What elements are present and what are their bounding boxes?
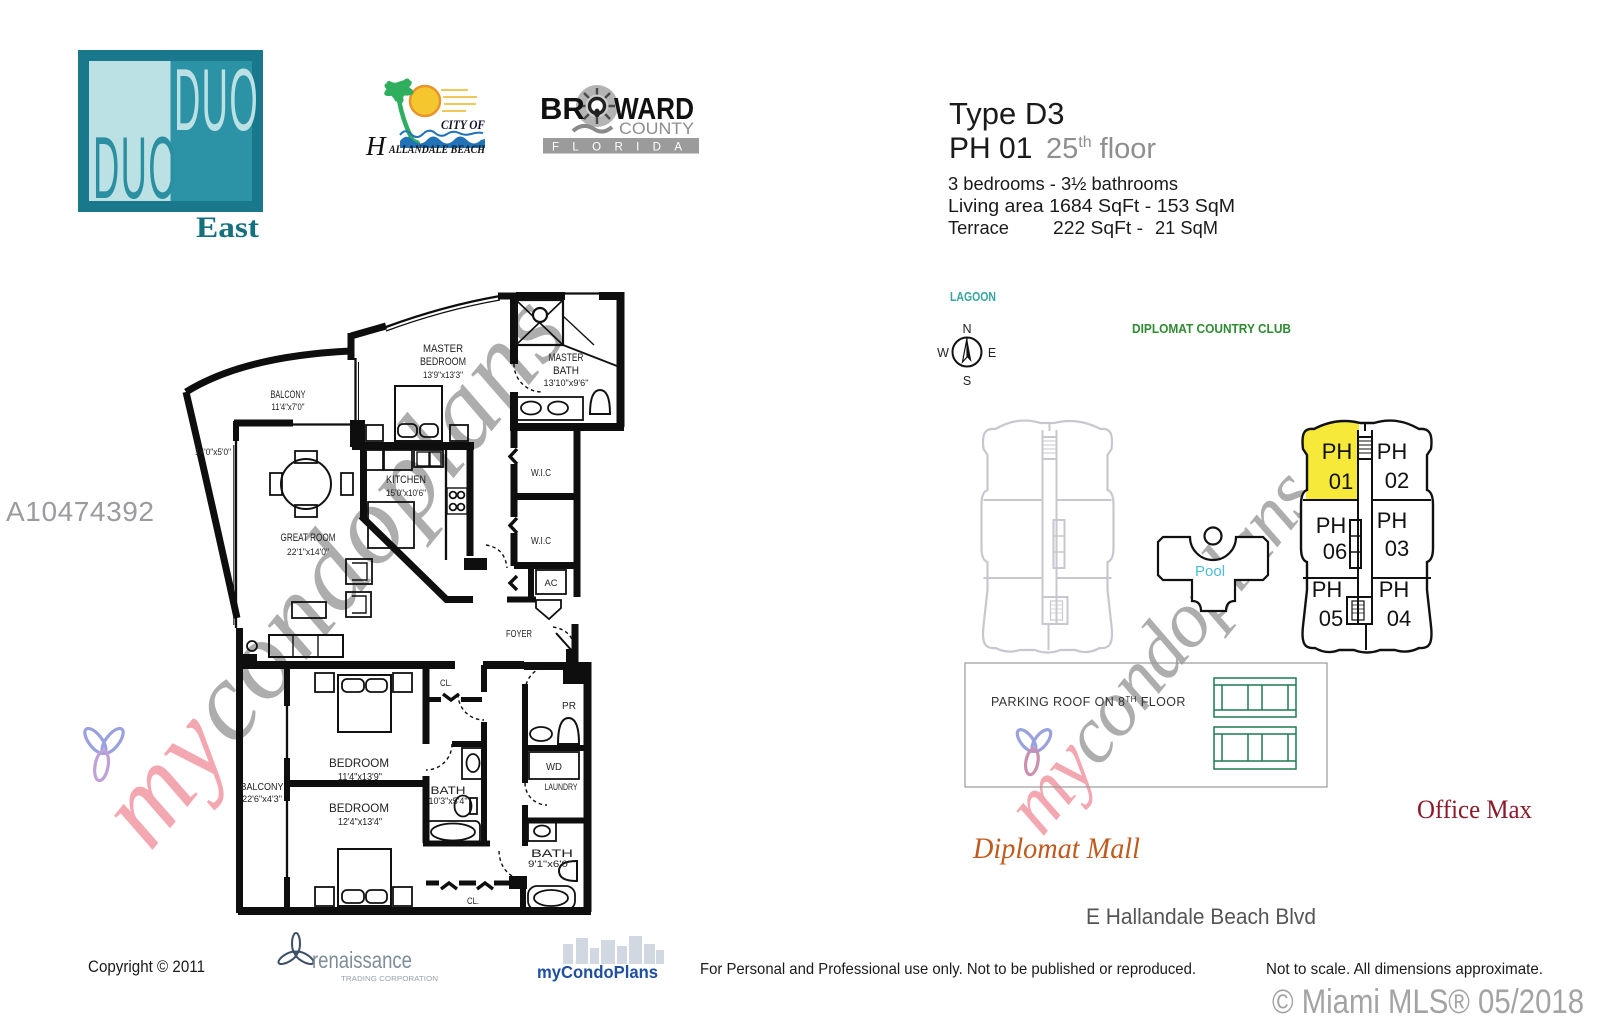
svg-text:01: 01 bbox=[1329, 469, 1353, 494]
svg-text:BR: BR bbox=[540, 91, 585, 126]
svg-text:Type D3: Type D3 bbox=[949, 96, 1064, 131]
svg-text:E: E bbox=[988, 346, 996, 360]
svg-text:03: 03 bbox=[1385, 536, 1409, 561]
svg-text:BEDROOM: BEDROOM bbox=[329, 801, 389, 815]
svg-text:MASTER: MASTER bbox=[423, 343, 463, 355]
svg-text:Terrace: Terrace bbox=[948, 217, 1009, 238]
svg-text:renaissance: renaissance bbox=[312, 947, 412, 973]
svg-text:A10474392: A10474392 bbox=[6, 496, 154, 527]
svg-text:© Miami MLS® 05/2018: © Miami MLS® 05/2018 bbox=[1272, 983, 1584, 1021]
svg-text:N: N bbox=[962, 322, 971, 336]
svg-text:BEDROOM: BEDROOM bbox=[329, 756, 389, 770]
svg-text:W: W bbox=[937, 346, 949, 360]
svg-text:13'9"x13'3": 13'9"x13'3" bbox=[423, 370, 463, 381]
svg-text:PH: PH bbox=[1377, 508, 1408, 533]
svg-text:9'1"x6'0": 9'1"x6'0" bbox=[528, 859, 572, 869]
svg-text:PR: PR bbox=[562, 701, 576, 712]
svg-text:22'1"x14'0": 22'1"x14'0" bbox=[287, 547, 329, 558]
svg-text:E Hallandale Beach Blvd: E Hallandale Beach Blvd bbox=[1086, 904, 1316, 929]
svg-text:02: 02 bbox=[1385, 468, 1409, 493]
svg-text:04: 04 bbox=[1387, 606, 1411, 631]
svg-text:BALCONY: BALCONY bbox=[241, 782, 284, 793]
svg-text:BATH: BATH bbox=[553, 365, 579, 377]
svg-text:Not to scale. All dimensions: Not to scale. All dimensions approximate… bbox=[1266, 961, 1543, 978]
svg-text:W.I.C: W.I.C bbox=[531, 536, 551, 547]
svg-text:Pool: Pool bbox=[1195, 563, 1225, 580]
svg-text:Copyright © 2011: Copyright © 2011 bbox=[88, 958, 205, 976]
svg-text:11'4"x13'9": 11'4"x13'9" bbox=[338, 772, 382, 783]
svg-text:PH 01: PH 01 bbox=[949, 132, 1032, 165]
svg-text:Living area 1684 SqFt - 153 Sq: Living area 1684 SqFt - 153 SqM bbox=[948, 195, 1235, 216]
svg-text:KITCHEN: KITCHEN bbox=[386, 474, 426, 486]
svg-text:Office Max: Office Max bbox=[1417, 795, 1532, 824]
svg-text:AC: AC bbox=[545, 578, 559, 588]
svg-text:13'10"x9'6": 13'10"x9'6" bbox=[544, 378, 589, 389]
svg-text:12'4"x13'4": 12'4"x13'4" bbox=[338, 817, 382, 828]
svg-text:LAGOON: LAGOON bbox=[950, 290, 996, 304]
svg-text:05: 05 bbox=[1319, 606, 1343, 631]
svg-text:Diplomat Mall: Diplomat Mall bbox=[972, 832, 1140, 865]
svg-text:LAUNDRY: LAUNDRY bbox=[545, 782, 578, 793]
svg-text:DUO: DUO bbox=[93, 120, 178, 218]
svg-text:TRADING CORPORATION: TRADING CORPORATION bbox=[341, 974, 438, 983]
svg-text:25th floor: 25th floor bbox=[1046, 133, 1156, 165]
svg-text:CL.: CL. bbox=[440, 678, 452, 689]
svg-text:PH: PH bbox=[1316, 513, 1347, 538]
svg-text:East: East bbox=[196, 211, 259, 244]
svg-text:11'4"x7'0": 11'4"x7'0" bbox=[272, 402, 305, 412]
svg-text:22'6"x4'3": 22'6"x4'3" bbox=[242, 794, 282, 804]
svg-text:CITY OF: CITY OF bbox=[441, 117, 485, 132]
svg-text:PH: PH bbox=[1322, 439, 1353, 464]
svg-text:S: S bbox=[963, 374, 971, 388]
svg-text:PH: PH bbox=[1377, 439, 1408, 464]
svg-text:3 bedrooms - 3½ bathrooms: 3 bedrooms - 3½ bathrooms bbox=[948, 173, 1178, 194]
svg-text:222 SqFt -: 222 SqFt - bbox=[1053, 217, 1143, 238]
svg-text:DUO: DUO bbox=[174, 52, 259, 150]
svg-text:For Personal and Professional: For Personal and Professional use only. … bbox=[700, 961, 1196, 978]
svg-text:10'3"x5'4": 10'3"x5'4" bbox=[429, 796, 468, 806]
svg-text:BALCONY: BALCONY bbox=[271, 389, 306, 401]
svg-text:PH: PH bbox=[1312, 577, 1343, 602]
svg-text:WD: WD bbox=[546, 762, 562, 773]
svg-text:myCondoPlans: myCondoPlans bbox=[537, 962, 658, 982]
svg-text:CL.: CL. bbox=[467, 896, 479, 907]
svg-text:GREAT ROOM: GREAT ROOM bbox=[281, 532, 336, 544]
svg-text:DIPLOMAT COUNTRY CLUB: DIPLOMAT COUNTRY CLUB bbox=[1132, 322, 1291, 336]
svg-text:MASTER: MASTER bbox=[549, 352, 584, 364]
svg-text:FOYER: FOYER bbox=[506, 629, 532, 640]
svg-text:PARKING ROOF ON 8TH FLOOR: PARKING ROOF ON 8TH FLOOR bbox=[991, 695, 1186, 709]
svg-text:COUNTY: COUNTY bbox=[619, 119, 694, 138]
svg-text:W.I.C: W.I.C bbox=[531, 468, 551, 479]
svg-text:21 SqM: 21 SqM bbox=[1155, 217, 1218, 238]
svg-text:14'0"x5'0": 14'0"x5'0" bbox=[195, 447, 231, 457]
svg-text:BEDROOM: BEDROOM bbox=[420, 356, 466, 368]
svg-text:ALLANDALE BEACH: ALLANDALE BEACH bbox=[388, 142, 485, 156]
svg-text:15'0"x10'6": 15'0"x10'6" bbox=[386, 488, 426, 499]
svg-text:PH: PH bbox=[1379, 577, 1410, 602]
svg-text:H: H bbox=[365, 131, 387, 161]
svg-text:06: 06 bbox=[1323, 539, 1347, 564]
